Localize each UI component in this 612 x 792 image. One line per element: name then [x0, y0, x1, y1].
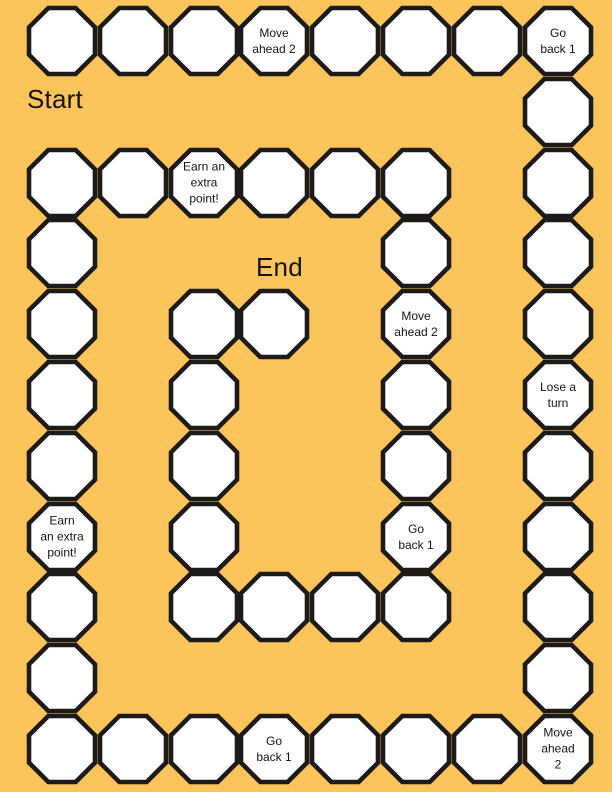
space-label: Go back 1: [385, 521, 447, 553]
octagon-icon: [171, 504, 237, 570]
octagon-icon: [171, 362, 237, 428]
board-space-20: [383, 716, 449, 782]
octagon-icon: [383, 8, 449, 74]
octagon-icon: [171, 716, 237, 782]
board-space-40: Move ahead 2: [383, 291, 449, 357]
octagon-icon: [525, 433, 591, 499]
board-space-45: [312, 574, 378, 640]
octagon-icon: [383, 150, 449, 216]
board-space-22: Go back 1: [241, 716, 307, 782]
octagon-icon: [241, 150, 307, 216]
octagon-icon: [171, 433, 237, 499]
board-space-3: [171, 8, 237, 74]
board-space-12: [525, 291, 591, 357]
octagon-icon: [525, 220, 591, 286]
board-space-42: [383, 433, 449, 499]
board-space-36: [241, 150, 307, 216]
octagon-icon: [171, 8, 237, 74]
octagon-icon: [383, 433, 449, 499]
octagon-icon: [383, 362, 449, 428]
board-space-33: [29, 150, 95, 216]
octagon-icon: [241, 574, 307, 640]
space-label: Go back 1: [527, 25, 589, 57]
board-space-4: Move ahead 2: [241, 8, 307, 74]
octagon-icon: [29, 574, 95, 640]
board-space-41: [383, 362, 449, 428]
octagon-icon: [241, 291, 307, 357]
board-space-21: [312, 716, 378, 782]
octagon-icon: [100, 150, 166, 216]
board-space-25: [29, 716, 95, 782]
board-space-44: [383, 574, 449, 640]
space-label: Move ahead 2: [527, 725, 589, 774]
octagon-icon: [383, 574, 449, 640]
octagon-icon: [454, 716, 520, 782]
game-board: Move ahead 2Go back 1Lose a turnMove ahe…: [0, 0, 612, 792]
board-space-24: [100, 716, 166, 782]
space-label: Move ahead 2: [385, 308, 447, 340]
octagon-icon: [454, 8, 520, 74]
board-space-2: [100, 8, 166, 74]
octagon-icon: [525, 645, 591, 711]
board-space-32: [29, 220, 95, 286]
octagon-icon: [29, 716, 95, 782]
board-space-37: [312, 150, 378, 216]
board-space-35: Earn an extra point!: [171, 150, 237, 216]
octagon-icon: [100, 8, 166, 74]
octagon-icon: [29, 150, 95, 216]
board-space-14: [525, 433, 591, 499]
board-space-30: [29, 362, 95, 428]
octagon-icon: [312, 150, 378, 216]
board-space-48: [171, 504, 237, 570]
board-space-26: [29, 645, 95, 711]
end-label: End: [256, 252, 303, 283]
board-space-50: [171, 362, 237, 428]
board-space-10: [525, 150, 591, 216]
board-space-7: [454, 8, 520, 74]
board-space-46: [241, 574, 307, 640]
octagon-icon: [525, 79, 591, 145]
octagon-icon: [29, 291, 95, 357]
start-label: Start: [27, 84, 83, 115]
octagon-icon: [171, 291, 237, 357]
space-label: Lose a turn: [527, 379, 589, 411]
board-space-29: [29, 433, 95, 499]
board-space-1: [29, 8, 95, 74]
board-space-18: Move ahead 2: [525, 716, 591, 782]
board-space-43: Go back 1: [383, 504, 449, 570]
board-space-28: Earn an extra point!: [29, 504, 95, 570]
game-board-page: Move ahead 2Go back 1Lose a turnMove ahe…: [0, 0, 612, 792]
board-space-17: [525, 645, 591, 711]
octagon-icon: [29, 220, 95, 286]
board-space-47: [171, 574, 237, 640]
board-space-34: [100, 150, 166, 216]
octagon-icon: [171, 574, 237, 640]
octagon-icon: [312, 716, 378, 782]
board-space-52: [241, 291, 307, 357]
octagon-icon: [525, 291, 591, 357]
octagon-icon: [525, 150, 591, 216]
octagon-icon: [100, 716, 166, 782]
board-space-31: [29, 291, 95, 357]
board-space-5: [312, 8, 378, 74]
board-space-51: [171, 291, 237, 357]
board-space-49: [171, 433, 237, 499]
board-space-6: [383, 8, 449, 74]
space-label: Go back 1: [243, 733, 305, 765]
board-space-27: [29, 574, 95, 640]
octagon-icon: [525, 574, 591, 640]
board-space-9: [525, 79, 591, 145]
octagon-icon: [29, 645, 95, 711]
board-space-13: Lose a turn: [525, 362, 591, 428]
octagon-icon: [312, 574, 378, 640]
board-space-19: [454, 716, 520, 782]
board-space-8: Go back 1: [525, 8, 591, 74]
board-space-38: [383, 150, 449, 216]
octagon-icon: [525, 504, 591, 570]
octagon-icon: [29, 8, 95, 74]
board-space-11: [525, 220, 591, 286]
octagon-icon: [312, 8, 378, 74]
board-space-39: [383, 220, 449, 286]
space-label: Move ahead 2: [243, 25, 305, 57]
octagon-icon: [29, 362, 95, 428]
octagon-icon: [29, 433, 95, 499]
board-space-15: [525, 504, 591, 570]
space-label: Earn an extra point!: [173, 159, 235, 208]
octagon-icon: [383, 716, 449, 782]
space-label: Earn an extra point!: [31, 513, 93, 562]
octagon-icon: [383, 220, 449, 286]
board-space-23: [171, 716, 237, 782]
board-space-16: [525, 574, 591, 640]
